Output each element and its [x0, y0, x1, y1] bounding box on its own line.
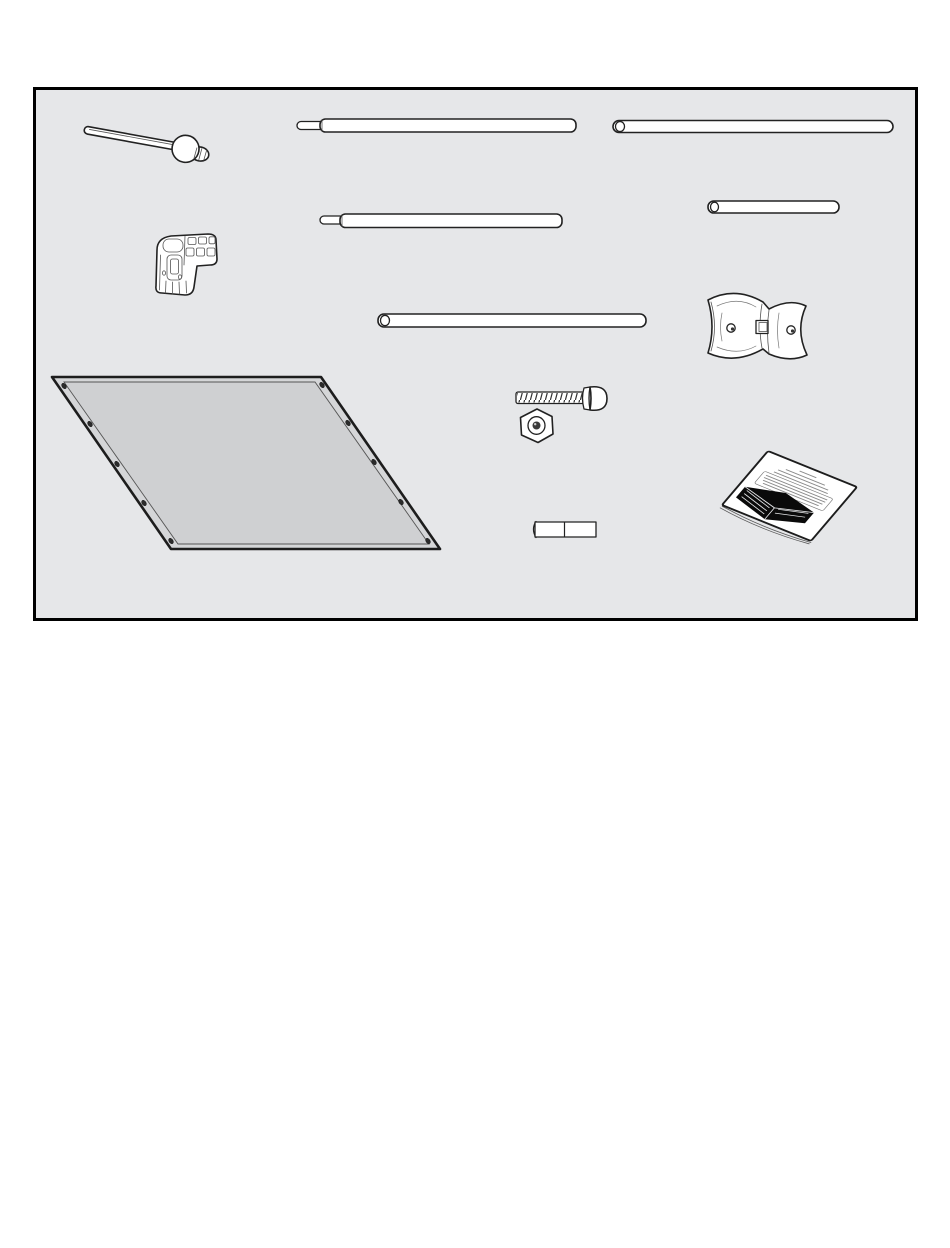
long-pole-with-tip-icon — [297, 119, 576, 132]
bracket-hole-right — [787, 326, 795, 334]
bracket-hole-left — [727, 324, 735, 332]
medium-pole-with-tip-icon — [320, 214, 562, 228]
bolt-flange — [583, 387, 591, 410]
bolt-threads — [517, 393, 583, 403]
carriage-bolt-icon — [516, 387, 607, 411]
long-pole-icon — [613, 121, 893, 133]
medium-pole-icon — [378, 314, 646, 327]
hex-nut-icon — [521, 409, 554, 443]
elbow-connector-icon — [156, 234, 217, 295]
short-pole-icon — [708, 201, 839, 213]
instruction-booklet-icon — [718, 451, 858, 546]
spacer-tube-icon — [534, 522, 597, 538]
ball-end-rod-icon — [82, 117, 212, 166]
manual-page — [0, 0, 950, 1248]
saddle-bracket-icon — [708, 293, 807, 358]
fabric-panel-icon — [52, 377, 440, 549]
bolt-head — [590, 387, 607, 411]
parts-illustrations — [0, 0, 950, 1248]
